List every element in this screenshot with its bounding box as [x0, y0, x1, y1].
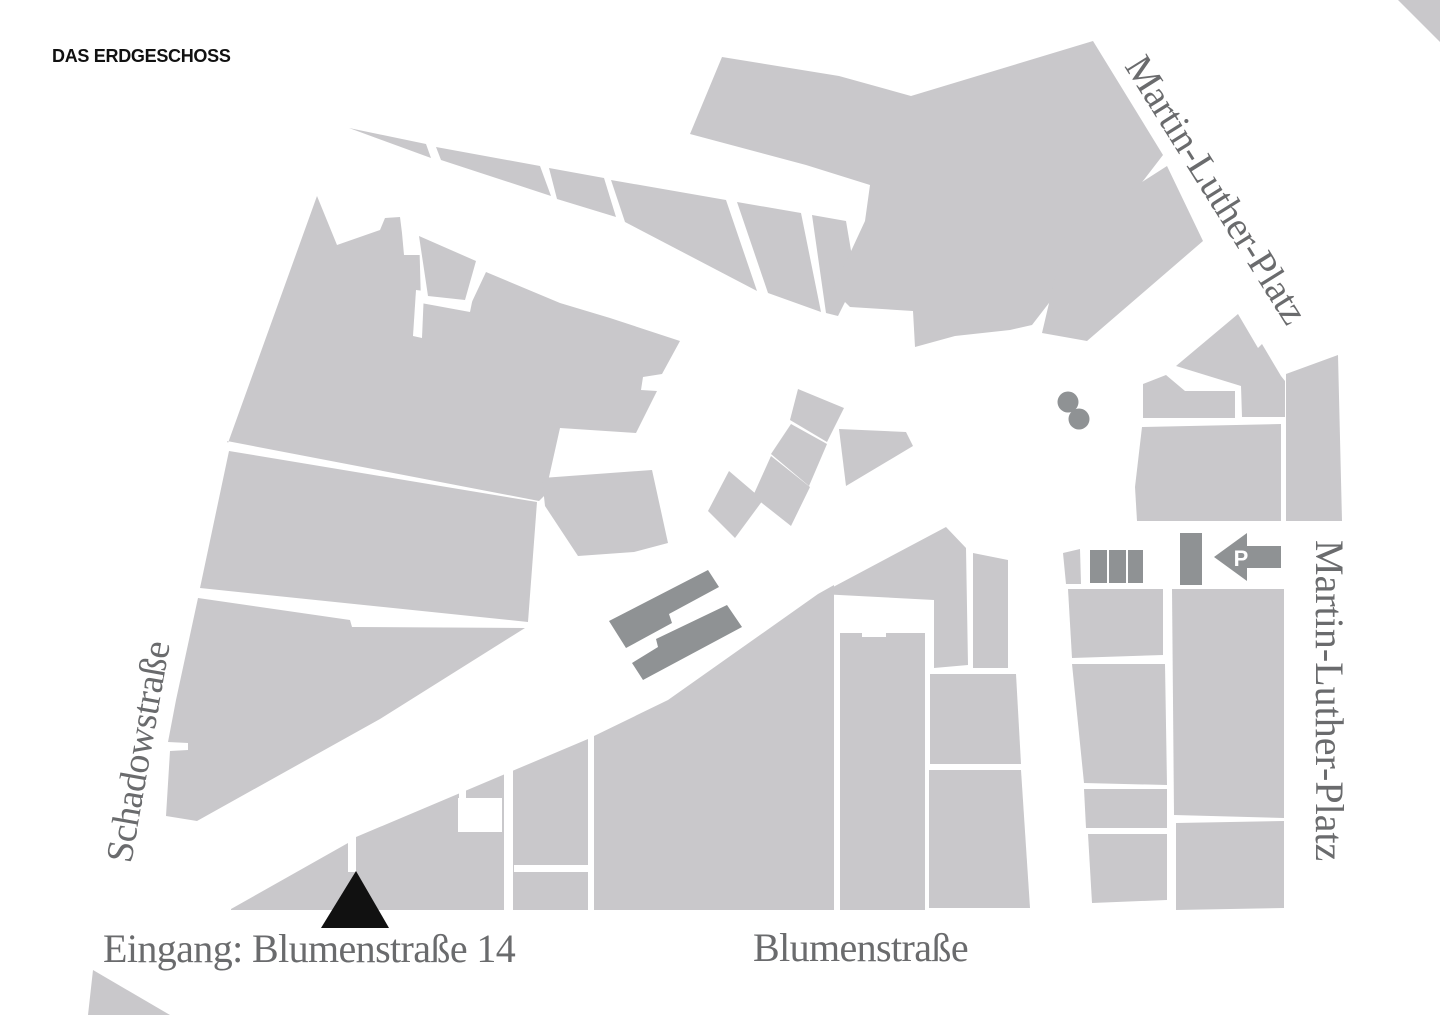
svg-text:Blumenstraße: Blumenstraße: [753, 925, 968, 970]
svg-text:Martin-Luther-Platz: Martin-Luther-Platz: [1307, 540, 1352, 861]
svg-text:P: P: [1234, 546, 1249, 571]
svg-text:DAS ERDGESCHOSS: DAS ERDGESCHOSS: [52, 46, 231, 66]
svg-text:Eingang: Blumenstraße 14: Eingang: Blumenstraße 14: [103, 926, 516, 971]
